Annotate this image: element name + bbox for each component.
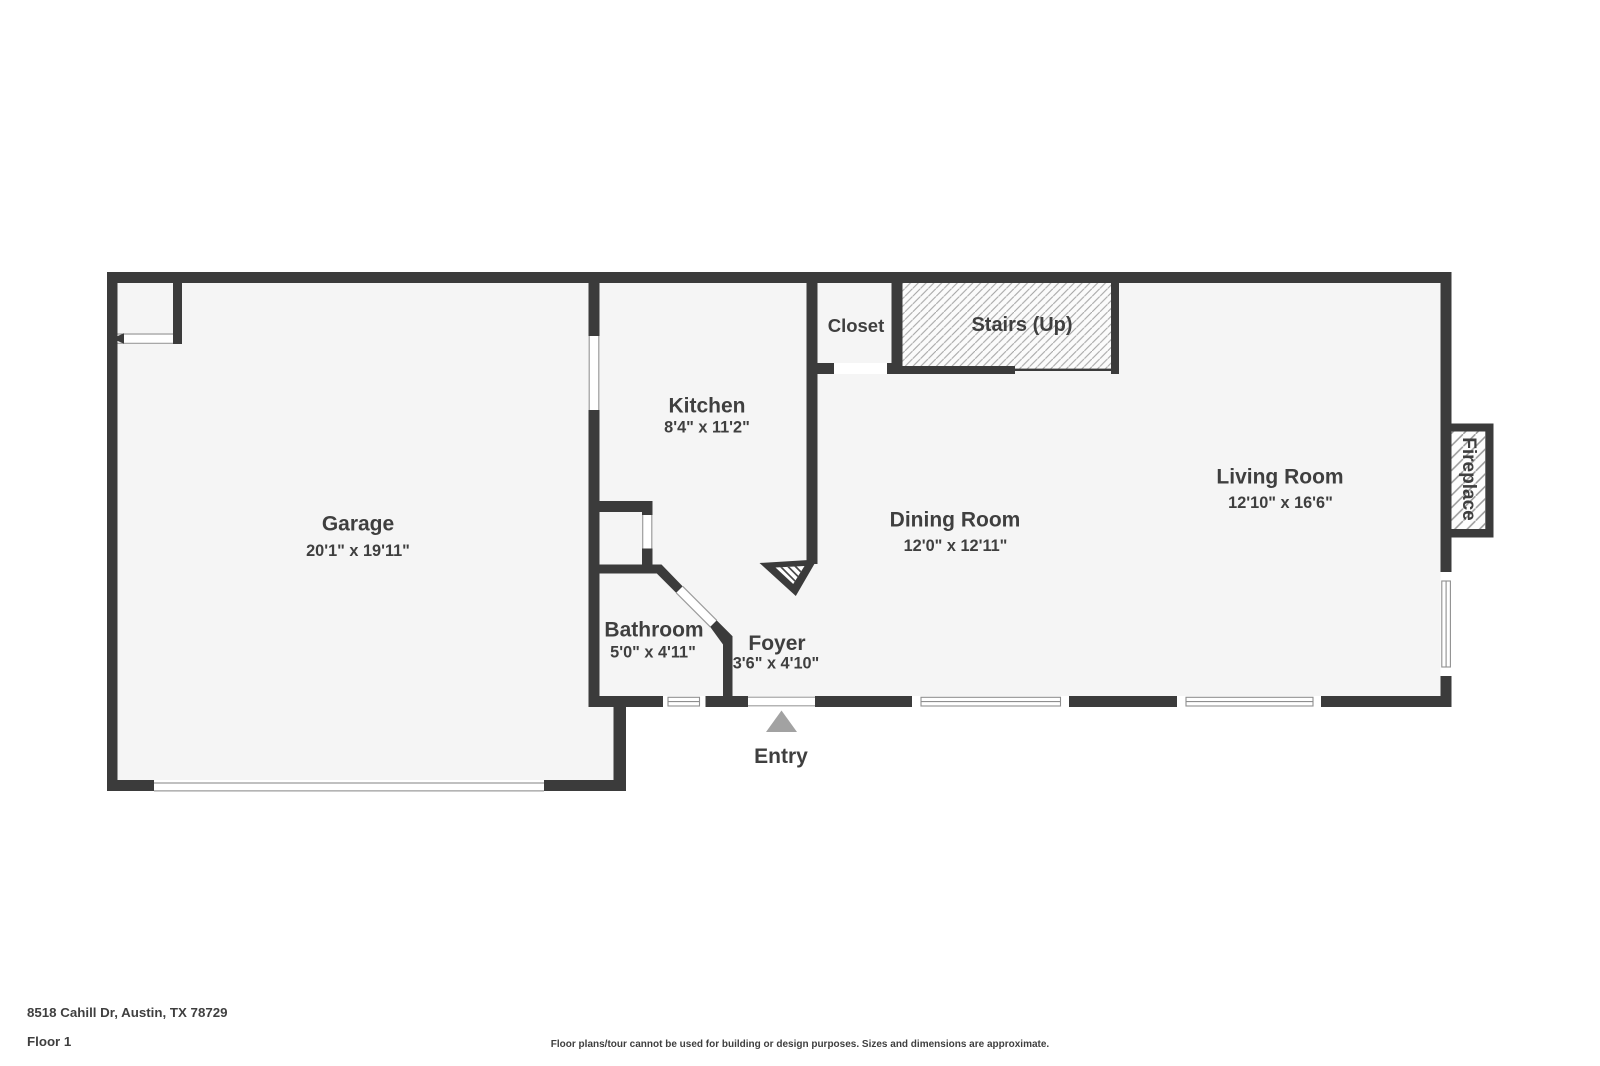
svg-text:Foyer: Foyer — [748, 632, 805, 655]
svg-text:12'10" x 16'6": 12'10" x 16'6" — [1228, 494, 1333, 512]
svg-text:Entry: Entry — [754, 745, 808, 768]
svg-text:Bathroom: Bathroom — [604, 619, 703, 642]
svg-text:Floor 1: Floor 1 — [27, 1034, 72, 1049]
svg-text:12'0" x 12'11": 12'0" x 12'11" — [904, 537, 1008, 555]
svg-text:Garage: Garage — [322, 513, 394, 536]
svg-text:Fireplace: Fireplace — [1458, 437, 1479, 520]
svg-text:20'1" x 19'11": 20'1" x 19'11" — [306, 542, 410, 560]
svg-text:8518 Cahill Dr, Austin, TX 787: 8518 Cahill Dr, Austin, TX 78729 — [27, 1005, 228, 1020]
svg-text:Closet: Closet — [828, 315, 885, 336]
svg-text:Living Room: Living Room — [1216, 466, 1343, 489]
svg-text:Dining Room: Dining Room — [890, 509, 1021, 532]
svg-text:3'6" x 4'10": 3'6" x 4'10" — [733, 655, 820, 673]
svg-text:5'0" x 4'11": 5'0" x 4'11" — [610, 644, 696, 662]
svg-text:8'4" x 11'2": 8'4" x 11'2" — [664, 419, 750, 437]
svg-text:Kitchen: Kitchen — [668, 395, 745, 418]
svg-text:Stairs (Up): Stairs (Up) — [971, 314, 1072, 336]
svg-text:Floor plans/tour cannot be use: Floor plans/tour cannot be used for buil… — [551, 1039, 1050, 1050]
